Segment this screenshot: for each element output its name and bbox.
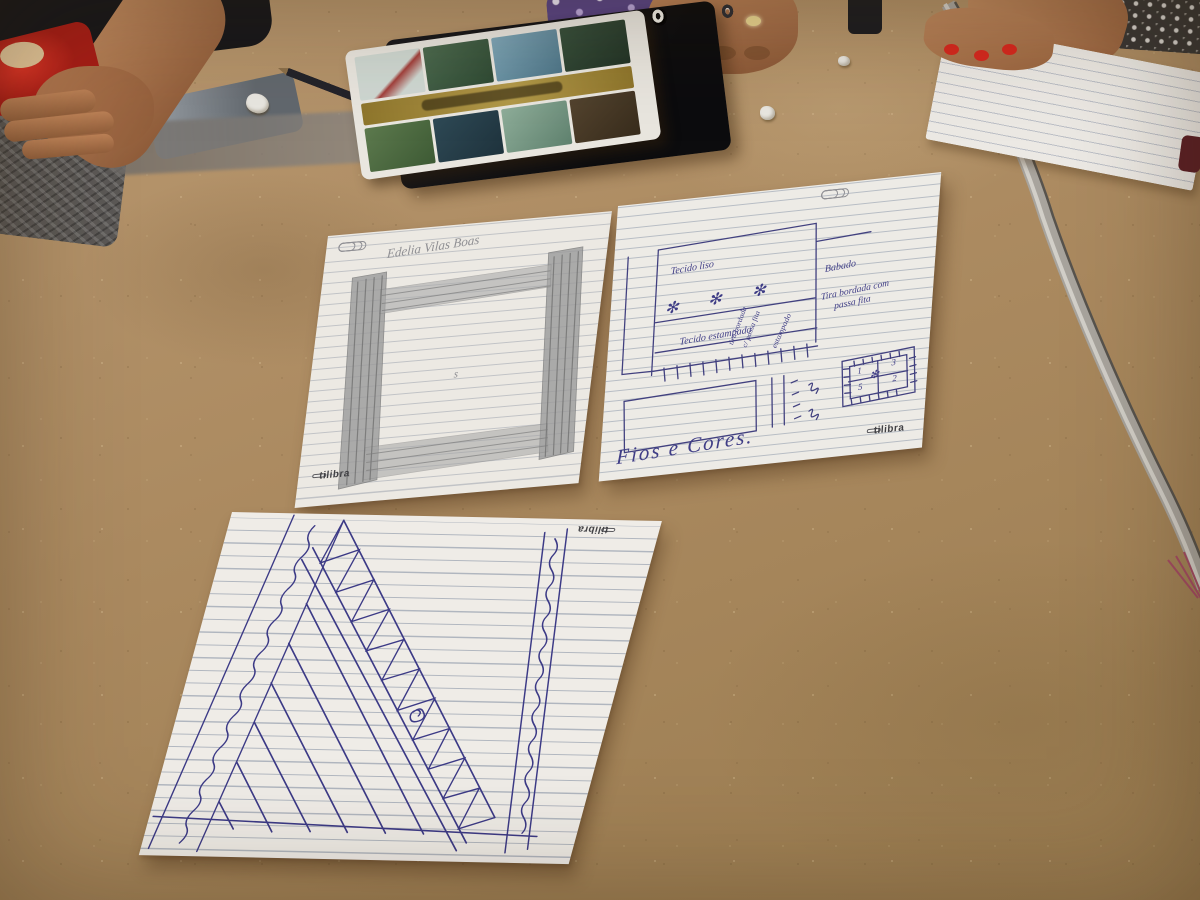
quilt-center-flower: ✻	[869, 368, 879, 382]
pencil-frame-sketch	[295, 211, 612, 508]
quilt-number: 1	[857, 365, 862, 376]
painted-nail	[974, 50, 989, 61]
tilibra-logo: tilibra	[867, 428, 881, 434]
knuckle	[744, 46, 770, 60]
dark-red-object	[1178, 135, 1200, 174]
cover-photo-tile	[364, 119, 435, 172]
painted-nail	[944, 44, 959, 55]
cover-photo-tile	[501, 100, 572, 153]
ring	[746, 16, 761, 26]
cover-photo-tile	[559, 19, 630, 72]
quilt-number: 3	[891, 357, 896, 368]
cover-photo-tile	[569, 91, 640, 144]
cover-photo-tile	[354, 48, 425, 101]
cover-photo-tile	[433, 110, 504, 163]
flower-drawing: ✻	[664, 297, 679, 319]
cover-photo-tile	[423, 39, 494, 92]
red-object-label-patch	[0, 40, 45, 70]
quilt-number: 5	[858, 381, 863, 392]
sketch-paper-left: Edelia Vilas Boas s tilibra	[295, 211, 612, 508]
quilt-number: 2	[892, 373, 897, 384]
flower-drawing: ✻	[752, 280, 767, 302]
paper-scrap	[760, 106, 775, 120]
pen-design-sketch	[599, 172, 941, 481]
tilibra-logo: tilibra	[312, 473, 326, 478]
cover-photo-tile	[491, 29, 562, 82]
flower-drawing: ✻	[707, 289, 722, 311]
dark-background-gap	[848, 0, 882, 34]
painted-nail	[1002, 44, 1017, 55]
design-paper-right: Tecido liso Babado Tira bordada com pass…	[599, 172, 941, 481]
paper-scrap	[838, 56, 850, 66]
photo-craft-table-scene: Edelia Vilas Boas s tilibra	[0, 0, 1200, 900]
